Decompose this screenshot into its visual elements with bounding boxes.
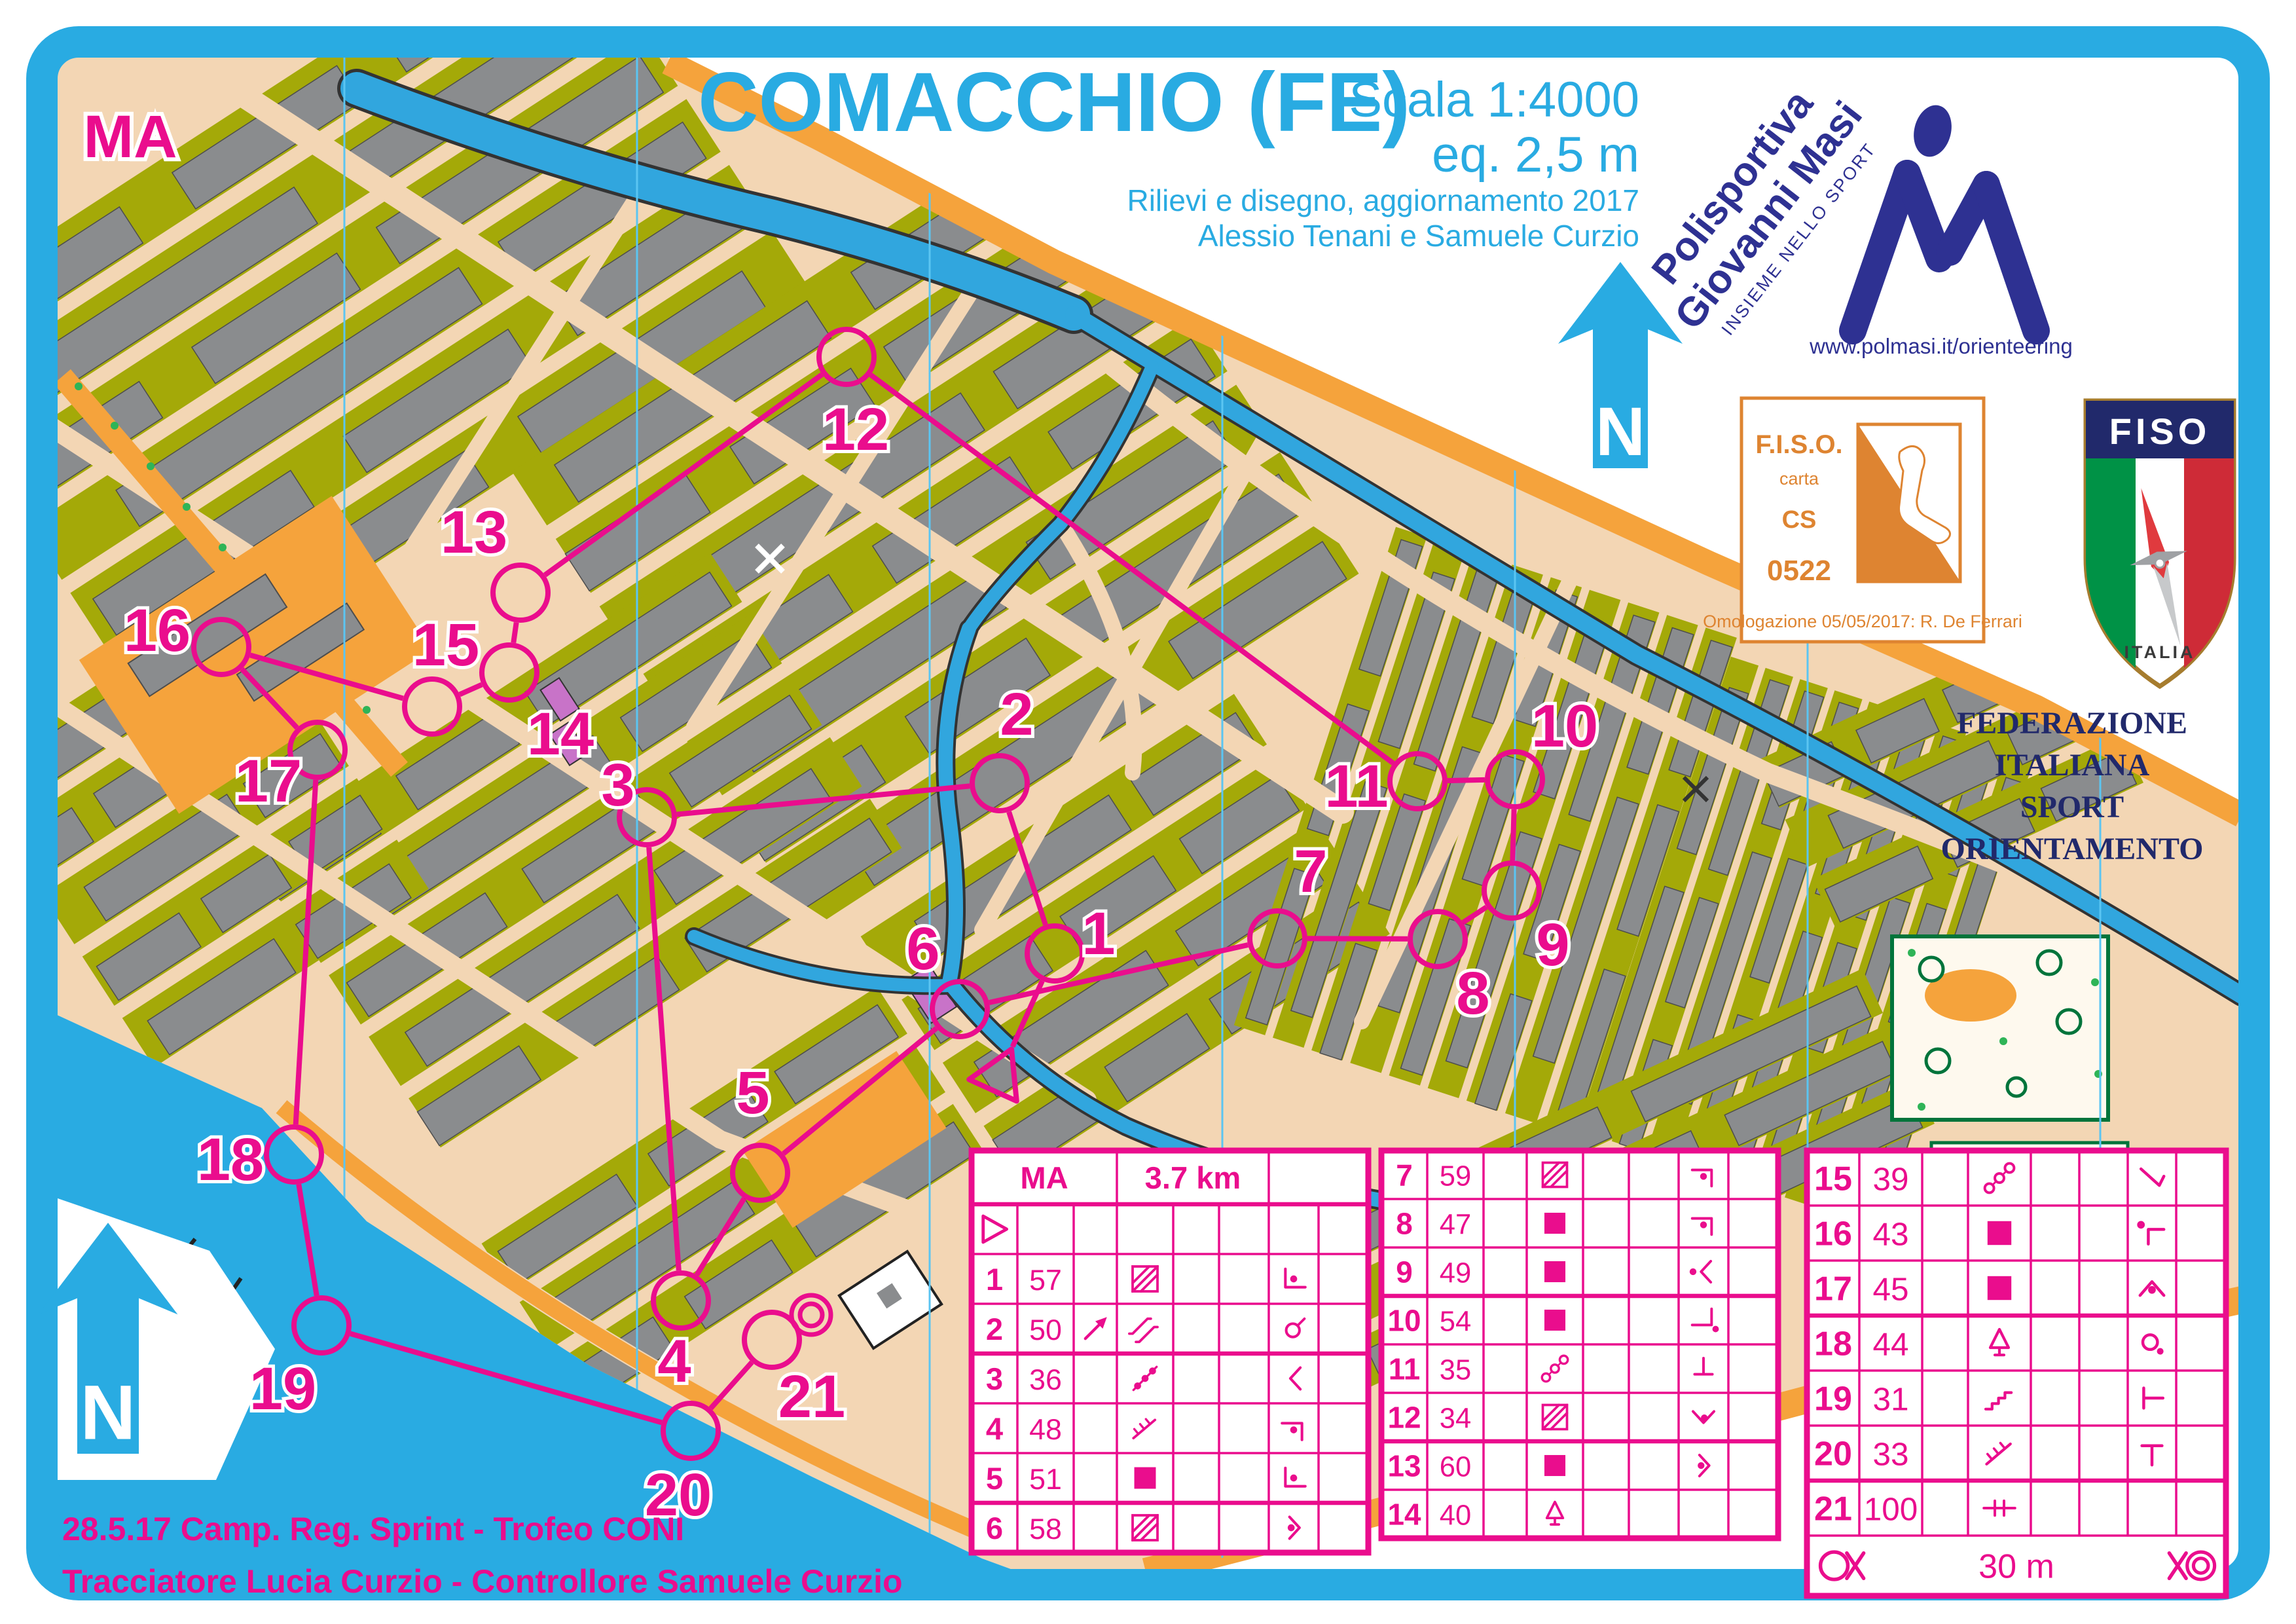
control-number: 9 [1396,1255,1413,1289]
control-number: 7 [1396,1158,1413,1192]
course-leg [513,623,516,643]
control-number: 16 [1814,1215,1852,1253]
control-number-label-5: 5 [736,1060,769,1126]
control-number-label-1: 1 [1082,900,1115,967]
control-number: 1 [986,1262,1003,1297]
control-number: 15 [1814,1160,1852,1198]
map-canvas: 123456789101112131415161718192021 MA COM… [0,0,2296,1624]
cert-class: CS [1782,506,1817,534]
control-descriptions-table: 1539164317451844193120332110030 m [1807,1151,2226,1596]
italy-map-emblem [1858,424,1960,581]
control-descriptions-table: 75984794910541135123413601440 [1381,1151,1778,1538]
shield-country: ITALIA [2124,642,2196,662]
control-number: 19 [1814,1380,1852,1418]
map-credit-1: Rilievi e disegno, aggiornamento 2017 [1127,183,1639,217]
control-number: 20 [1814,1435,1852,1473]
control-number: 10 [1387,1304,1421,1338]
control-number-label-3: 3 [601,752,634,819]
control-number: 8 [1396,1207,1413,1241]
control-number-label-21: 21 [778,1363,845,1430]
control-code: 43 [1872,1217,1908,1253]
control-code: 57 [1029,1264,1062,1297]
control-number-label-4: 4 [657,1328,691,1395]
control-code: 40 [1440,1500,1471,1532]
control-number: 6 [986,1511,1003,1545]
federation-line-2: ITALIANA [1995,748,2150,783]
map-credit-2: Alessio Tenani e Samuele Curzio [1198,219,1639,253]
control-number-label-13: 13 [441,499,507,566]
finish-distance: 30 m [1978,1548,2054,1586]
federation-line-4: ORIENTAMENTO [1941,832,2204,866]
fiso-certification-box: F.I.S.O. carta CS 0522 Omologazione 05/0… [1703,398,2022,642]
control-code: 47 [1440,1209,1471,1241]
control-code: 58 [1029,1513,1062,1545]
control-code: 51 [1029,1463,1062,1496]
control-number: 4 [986,1411,1003,1446]
control-code: 33 [1872,1437,1908,1473]
course-leg [1512,809,1514,860]
control-number: 2 [986,1312,1003,1346]
north-label: N [81,1370,136,1456]
control-number-label-11: 11 [1324,753,1388,820]
control-code: 48 [1029,1413,1062,1446]
control-code: 54 [1440,1306,1471,1338]
control-code: 59 [1440,1161,1471,1192]
cert-org: F.I.S.O. [1755,430,1842,459]
map-equidistance: eq. 2,5 m [1432,127,1639,183]
control-number-label-15: 15 [412,612,479,678]
federation-line-1: FEDERAZIONE [1957,706,2187,741]
club-website: www.polmasi.it/orienteering [1809,334,2073,358]
control-number: 5 [986,1461,1003,1496]
control-number-label-2: 2 [1000,681,1033,748]
federation-line-3: SPORT [2020,790,2124,824]
control-descriptions-table: MA3.7 km157250336448551658 [972,1151,1368,1553]
event-line-2: Tracciatore Lucia Curzio - Controllore S… [62,1563,903,1600]
control-code: 39 [1872,1162,1908,1198]
control-code: 45 [1872,1272,1908,1308]
control-code: 50 [1029,1314,1062,1346]
control-code: 31 [1872,1382,1908,1418]
control-number: 13 [1387,1449,1421,1483]
course-leg [1307,938,1408,939]
orienteering-map-sheet: 123456789101112131415161718192021 MA COM… [0,0,2296,1624]
course-leg [1448,780,1485,781]
control-number-label-12: 12 [822,396,889,463]
control-number-label-7: 7 [1294,838,1327,905]
control-number-label-14: 14 [527,701,594,767]
control-number: 3 [986,1361,1003,1396]
control-number-label-9: 9 [1536,912,1569,978]
cert-number: 0522 [1767,555,1831,587]
shield-title: FISO [2109,411,2211,452]
control-description-tables: MA3.7 km15725033644855165875984794910541… [972,1151,2226,1596]
control-number-label-17: 17 [235,748,302,815]
control-number-label-8: 8 [1456,960,1489,1027]
control-number-label-19: 19 [249,1356,316,1422]
map-scale: Scala 1:4000 [1349,72,1639,128]
control-code: 44 [1872,1327,1908,1363]
control-number-label-10: 10 [1531,693,1598,760]
control-number: 21 [1814,1490,1852,1528]
control-code: 34 [1440,1403,1471,1435]
course-class-label: MA [83,103,177,170]
cert-doc: carta [1779,469,1819,489]
control-number-label-16: 16 [124,597,191,664]
control-number: 18 [1814,1325,1852,1363]
control-number: 12 [1387,1401,1421,1435]
cert-homologation: Omologazione 05/05/2017: R. De Ferrari [1703,612,2022,631]
control-code: 49 [1440,1258,1471,1289]
control-code: 36 [1029,1363,1062,1396]
control-code: 35 [1440,1355,1471,1386]
control-code: 60 [1440,1452,1471,1483]
course-name: MA [1020,1160,1068,1195]
control-number-label-6: 6 [906,915,939,982]
map-title: COMACCHIO (FE) [698,56,1410,149]
control-code: 100 [1864,1492,1918,1528]
course-length: 3.7 km [1145,1160,1241,1195]
control-number: 14 [1387,1498,1421,1532]
north-label: N [1595,394,1645,470]
control-number-label-18: 18 [197,1126,264,1193]
control-number: 17 [1814,1270,1852,1308]
control-number: 11 [1389,1352,1421,1386]
event-line-1: 28.5.17 Camp. Reg. Sprint - Trofeo CONI [62,1511,684,1547]
